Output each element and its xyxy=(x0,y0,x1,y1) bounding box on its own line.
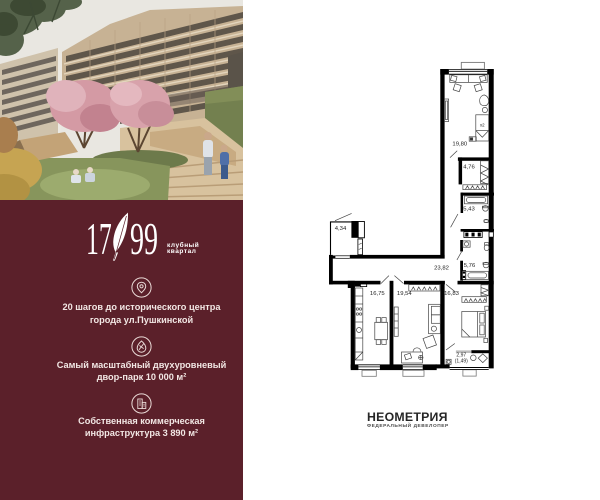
svg-text:23,82: 23,82 xyxy=(434,265,449,271)
svg-text:4,76: 4,76 xyxy=(463,165,475,171)
svg-text:19,80: 19,80 xyxy=(452,142,467,148)
svg-text:x2: x2 xyxy=(480,123,485,128)
svg-text:4,34: 4,34 xyxy=(335,226,347,232)
svg-text:5,76: 5,76 xyxy=(464,263,476,269)
svg-text:16,83: 16,83 xyxy=(444,291,459,297)
svg-text:5,43: 5,43 xyxy=(463,207,475,213)
svg-text:19,54: 19,54 xyxy=(397,291,412,297)
svg-text:16,75: 16,75 xyxy=(370,291,385,297)
svg-text:(1,49): (1,49) xyxy=(455,359,468,365)
